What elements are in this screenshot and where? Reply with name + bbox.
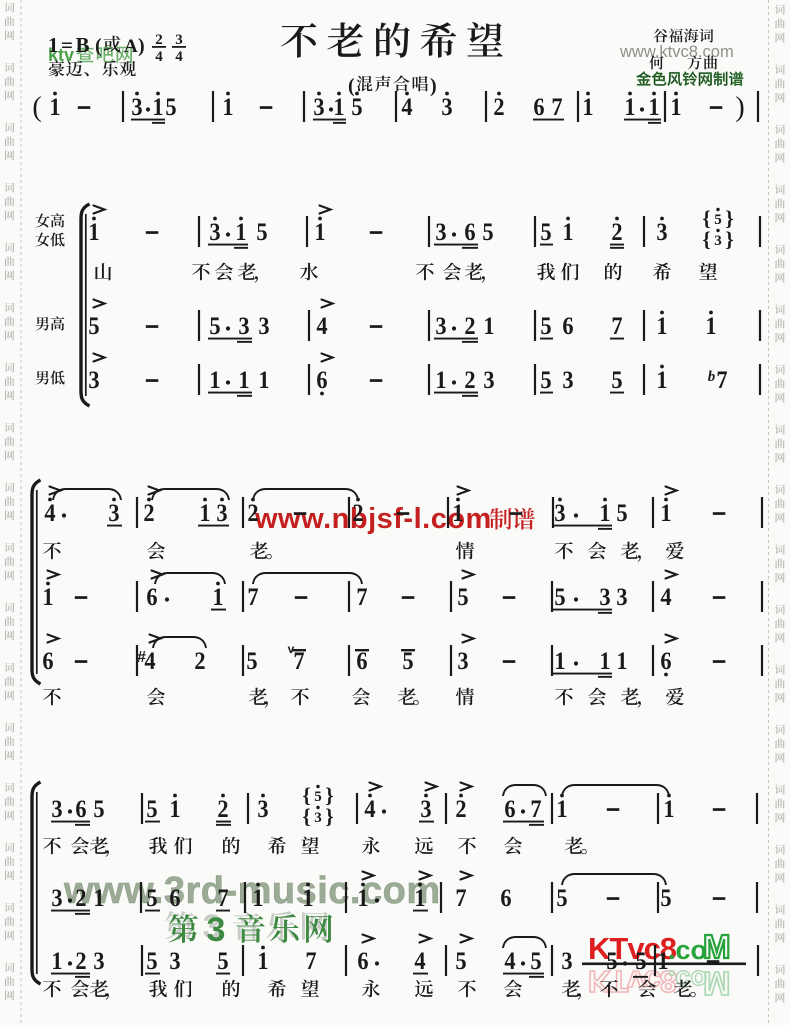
svg-text:3: 3 (207, 911, 226, 949)
svg-text:5: 5 (530, 948, 541, 975)
svg-text:5: 5 (554, 584, 565, 611)
svg-text:2: 2 (143, 500, 154, 527)
svg-text:3: 3 (51, 796, 62, 823)
svg-text:5: 5 (606, 948, 617, 975)
svg-text:2: 2 (75, 885, 86, 912)
svg-text:2: 2 (194, 648, 205, 675)
svg-text:5: 5 (457, 584, 468, 611)
svg-text:1: 1 (42, 584, 53, 611)
svg-text:1: 1 (235, 219, 246, 246)
svg-text:5: 5 (540, 219, 551, 246)
svg-text:5: 5 (93, 796, 104, 823)
svg-text:{: { (302, 804, 310, 828)
svg-text:3: 3 (616, 584, 627, 611)
svg-text:}: } (325, 804, 333, 828)
svg-text:}: } (725, 227, 733, 251)
svg-text:1: 1 (657, 948, 668, 975)
svg-text:7: 7 (530, 796, 541, 823)
svg-text:2: 2 (493, 94, 504, 121)
svg-text:3: 3 (562, 367, 573, 394)
svg-text:6: 6 (146, 584, 157, 611)
svg-text:A: A (124, 36, 138, 57)
svg-text:1: 1 (648, 94, 659, 121)
svg-text:6: 6 (500, 885, 511, 912)
svg-text:2: 2 (611, 219, 622, 246)
svg-text:1: 1 (554, 648, 565, 675)
svg-text:2: 2 (247, 500, 258, 527)
svg-text:5: 5 (540, 367, 551, 394)
svg-text:2: 2 (217, 796, 228, 823)
svg-text:3: 3 (93, 948, 104, 975)
svg-text:1: 1 (599, 500, 610, 527)
svg-text:1: 1 (258, 367, 269, 394)
svg-text:1: 1 (670, 94, 681, 121)
svg-text:5: 5 (635, 948, 646, 975)
svg-text:1: 1 (656, 367, 667, 394)
svg-text:3: 3 (561, 948, 572, 975)
svg-text:3: 3 (175, 32, 183, 48)
svg-text:2: 2 (75, 948, 86, 975)
svg-text:1: 1 (209, 367, 220, 394)
svg-text:4: 4 (414, 948, 426, 975)
svg-text:5: 5 (256, 219, 267, 246)
svg-text:5: 5 (209, 313, 220, 340)
svg-text:7: 7 (551, 94, 562, 121)
svg-text:4: 4 (144, 648, 156, 675)
svg-text:5: 5 (314, 789, 322, 805)
svg-text:3: 3 (216, 500, 227, 527)
svg-text:4: 4 (155, 49, 163, 65)
svg-text:1: 1 (49, 94, 60, 121)
svg-text:5: 5 (556, 885, 567, 912)
svg-text:#: # (137, 649, 146, 666)
svg-text:1: 1 (199, 500, 210, 527)
svg-text:3: 3 (435, 219, 446, 246)
svg-text:3: 3 (108, 500, 119, 527)
svg-text:3: 3 (209, 219, 220, 246)
svg-text:5: 5 (714, 212, 722, 228)
svg-text:1: 1 (656, 313, 667, 340)
svg-text:M: M (703, 965, 731, 1002)
svg-text:5: 5 (165, 94, 176, 121)
svg-text:(: ( (95, 35, 102, 57)
svg-text:7: 7 (217, 885, 228, 912)
svg-text:3: 3 (714, 233, 722, 249)
svg-text:6: 6 (316, 367, 327, 394)
svg-text:1: 1 (705, 313, 716, 340)
svg-text:1: 1 (616, 648, 627, 675)
svg-text:1: 1 (333, 94, 344, 121)
svg-text:4: 4 (316, 313, 328, 340)
svg-text:7: 7 (247, 584, 258, 611)
svg-text:1: 1 (93, 885, 104, 912)
svg-text:3: 3 (599, 584, 610, 611)
svg-text:5: 5 (402, 648, 413, 675)
svg-text:): ) (735, 92, 744, 123)
svg-text:2: 2 (464, 313, 475, 340)
svg-text:6: 6 (42, 648, 53, 675)
svg-text:3: 3 (258, 313, 269, 340)
svg-text:1: 1 (452, 500, 463, 527)
svg-text:3: 3 (131, 94, 142, 121)
svg-text:6: 6 (356, 648, 367, 675)
svg-text:{: { (702, 227, 710, 251)
svg-text:4: 4 (401, 94, 413, 121)
svg-text:6: 6 (562, 313, 573, 340)
svg-text:4: 4 (504, 948, 516, 975)
svg-text:1: 1 (414, 885, 425, 912)
svg-text:1: 1 (212, 584, 223, 611)
svg-text:1: 1 (556, 796, 567, 823)
svg-text:1: 1 (51, 948, 62, 975)
svg-text:1: 1 (357, 885, 368, 912)
svg-text:1: 1 (152, 94, 163, 121)
svg-text:6: 6 (533, 94, 544, 121)
svg-text:1: 1 (562, 219, 573, 246)
svg-text:b: b (708, 369, 716, 385)
svg-text:7: 7 (305, 948, 316, 975)
svg-text:1: 1 (582, 94, 593, 121)
svg-text:1: 1 (435, 367, 446, 394)
svg-text:1: 1 (252, 885, 263, 912)
svg-text:1: 1 (663, 796, 674, 823)
svg-text:3: 3 (435, 313, 446, 340)
svg-text:7: 7 (356, 584, 367, 611)
svg-text:2: 2 (155, 32, 163, 48)
svg-text:3: 3 (88, 367, 99, 394)
svg-text:1: 1 (222, 94, 233, 121)
svg-text:3: 3 (656, 219, 667, 246)
svg-text:5: 5 (146, 796, 157, 823)
svg-text:5: 5 (146, 885, 157, 912)
svg-text:3: 3 (457, 648, 468, 675)
svg-text:6: 6 (169, 885, 180, 912)
svg-text:4: 4 (44, 500, 56, 527)
svg-text:1: 1 (483, 313, 494, 340)
svg-text:7: 7 (455, 885, 466, 912)
svg-text:): ) (430, 75, 437, 97)
svg-text:5: 5 (217, 948, 228, 975)
svg-text:3: 3 (420, 796, 431, 823)
svg-text:1: 1 (302, 885, 313, 912)
svg-text:1: 1 (257, 948, 268, 975)
svg-text:3: 3 (483, 367, 494, 394)
svg-text:www.ktvc8.com: www.ktvc8.com (619, 43, 734, 61)
svg-text:5: 5 (246, 648, 257, 675)
svg-text:5: 5 (660, 885, 671, 912)
svg-text:4: 4 (175, 49, 183, 65)
svg-text:.co: .co (668, 935, 707, 965)
svg-text:7: 7 (293, 648, 304, 675)
svg-text:1: 1 (624, 94, 635, 121)
svg-text:4: 4 (660, 584, 672, 611)
svg-text:2: 2 (352, 500, 363, 527)
svg-text:5: 5 (540, 313, 551, 340)
svg-text:7: 7 (716, 367, 727, 394)
svg-text:7: 7 (611, 313, 622, 340)
svg-text:3: 3 (238, 313, 249, 340)
svg-text:1: 1 (88, 219, 99, 246)
svg-text:3: 3 (257, 796, 268, 823)
svg-text:2: 2 (464, 367, 475, 394)
svg-text:6: 6 (464, 219, 475, 246)
svg-text:2: 2 (455, 796, 466, 823)
svg-text:5: 5 (88, 313, 99, 340)
svg-text:5: 5 (616, 500, 627, 527)
svg-text:3: 3 (51, 885, 62, 912)
svg-text:): ) (138, 35, 145, 57)
svg-text:3: 3 (314, 810, 322, 826)
svg-text:M: M (703, 928, 731, 965)
svg-text:5: 5 (146, 948, 157, 975)
svg-text:6: 6 (357, 948, 368, 975)
svg-text:3: 3 (554, 500, 565, 527)
svg-text:4: 4 (364, 796, 376, 823)
svg-text:3: 3 (441, 94, 452, 121)
svg-text:1: 1 (660, 500, 671, 527)
svg-text:6: 6 (75, 796, 86, 823)
svg-text:5: 5 (611, 367, 622, 394)
svg-text:(: ( (32, 92, 41, 123)
svg-text:1: 1 (238, 367, 249, 394)
svg-text:1: 1 (169, 796, 180, 823)
svg-text:1=B: 1=B (48, 33, 92, 57)
svg-text:6: 6 (504, 796, 515, 823)
svg-text:5: 5 (455, 948, 466, 975)
svg-text:1: 1 (314, 219, 325, 246)
svg-text:6: 6 (660, 648, 671, 675)
svg-text:5: 5 (482, 219, 493, 246)
svg-text:5: 5 (351, 94, 362, 121)
svg-text:3: 3 (169, 948, 180, 975)
svg-text:3: 3 (313, 94, 324, 121)
svg-text:1: 1 (599, 648, 610, 675)
